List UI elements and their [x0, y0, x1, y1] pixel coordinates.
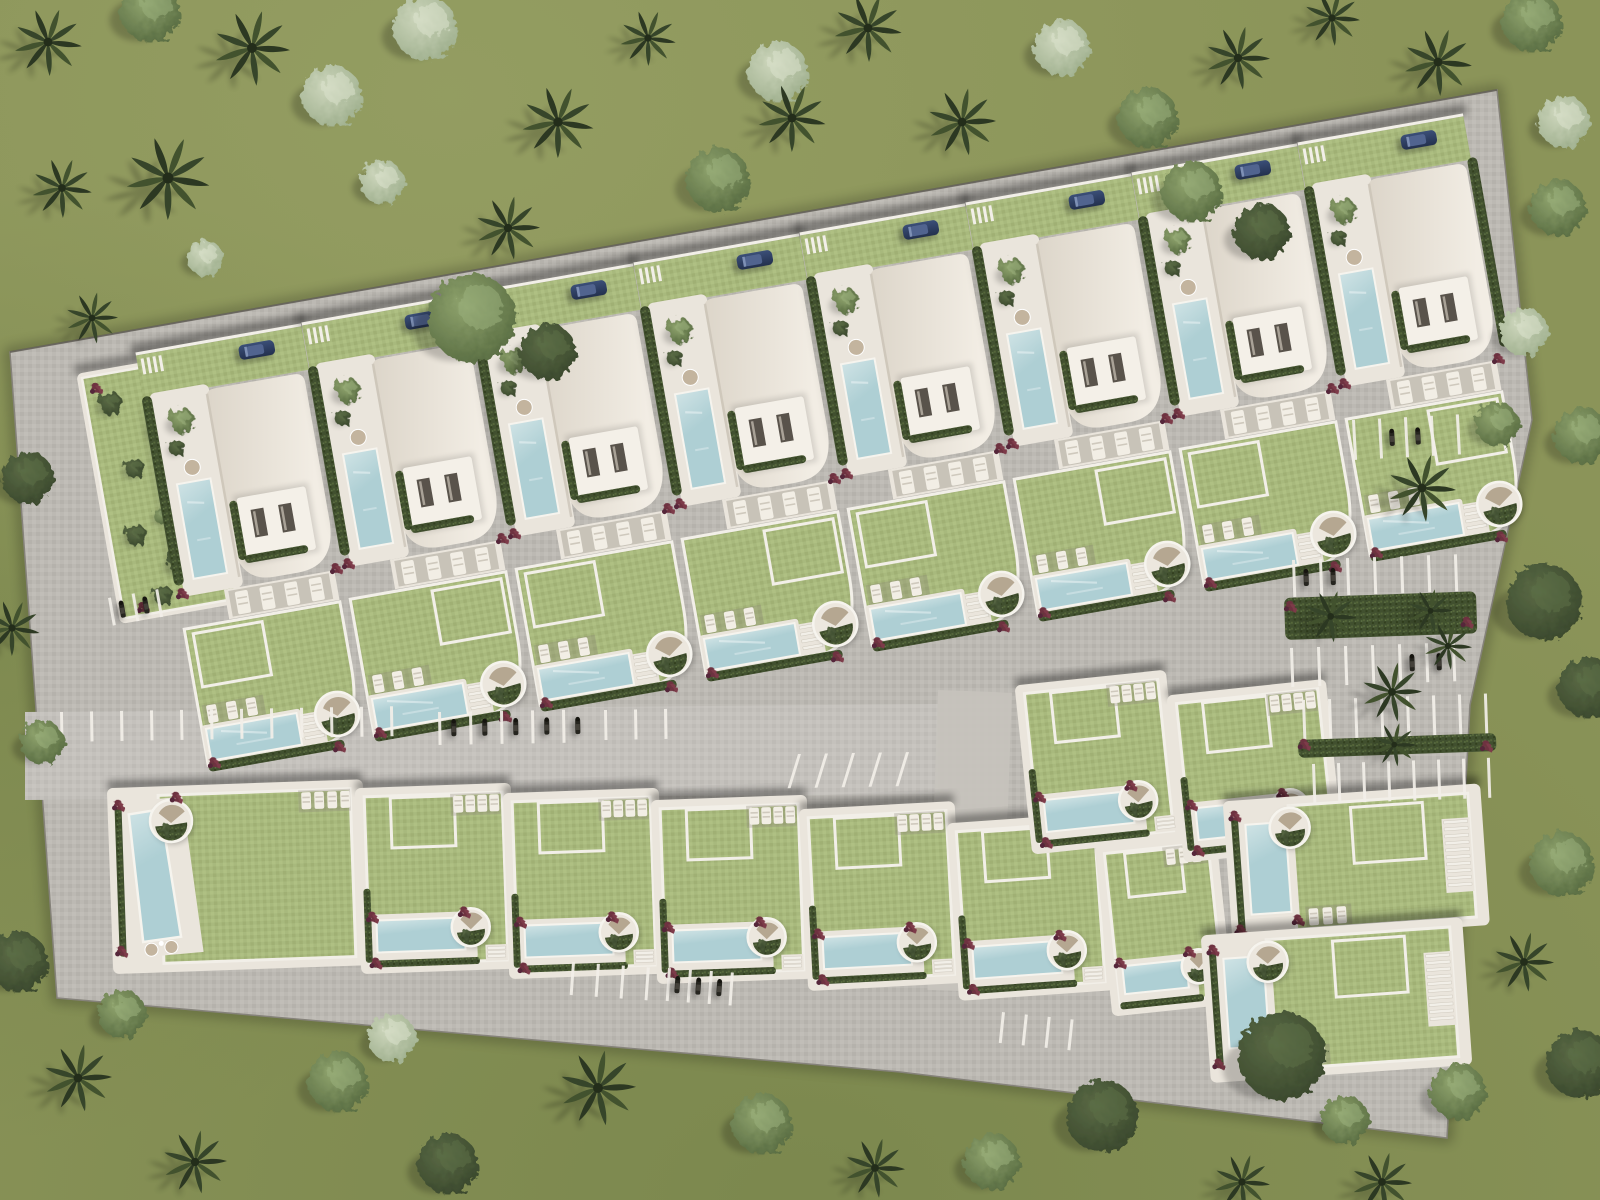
exterior-stairs: [932, 958, 955, 975]
villa-plot-bottom-4: [651, 788, 814, 984]
villa-plot-bottom-3: [503, 781, 666, 979]
sun-lounger: [1165, 848, 1176, 865]
exterior-stairs: [485, 944, 508, 961]
exterior-stairs: [1154, 814, 1178, 832]
exterior-stairs: [1423, 951, 1456, 1027]
sun-lounger: [897, 815, 907, 833]
sun-lounger: [761, 807, 771, 824]
sun-lounger: [453, 795, 463, 812]
sun-lounger: [601, 800, 611, 817]
sun-lounger: [933, 813, 943, 831]
villa-plot-bottom-5: [798, 794, 964, 991]
sun-lounger: [327, 791, 337, 808]
sun-lounger: [1133, 683, 1144, 701]
sun-lounger: [1269, 695, 1280, 713]
sun-lounger: [1281, 694, 1292, 712]
sun-lounger: [613, 800, 623, 817]
exterior-stairs: [1082, 966, 1105, 983]
sun-lounger: [465, 795, 475, 812]
sun-lounger: [340, 791, 350, 808]
sun-lounger: [909, 814, 919, 832]
swimming-pool: [1122, 960, 1189, 995]
exterior-stairs: [781, 954, 804, 971]
sun-lounger: [625, 800, 635, 817]
site-plan-svg: [0, 0, 1600, 1200]
sun-lounger: [785, 806, 795, 823]
sun-lounger: [489, 794, 499, 811]
sun-lounger: [749, 807, 759, 824]
villa-plot-bottom-1: [107, 772, 370, 974]
sun-lounger: [637, 799, 647, 816]
exterior-stairs: [1441, 817, 1474, 893]
sun-lounger: [477, 795, 487, 812]
sun-lounger: [1109, 686, 1120, 704]
sun-lounger: [921, 813, 931, 831]
sun-lounger: [1145, 682, 1156, 700]
site-plan-rendering: [0, 0, 1600, 1200]
exterior-stairs: [633, 949, 656, 966]
sun-lounger: [301, 792, 311, 809]
sun-lounger: [773, 807, 783, 824]
sun-lounger: [1305, 691, 1316, 709]
villa-plot-bottom-2: [355, 776, 518, 974]
villa-plot-mid-right-1: [1014, 663, 1184, 855]
sun-lounger: [1121, 684, 1132, 702]
sun-lounger: [314, 792, 324, 809]
